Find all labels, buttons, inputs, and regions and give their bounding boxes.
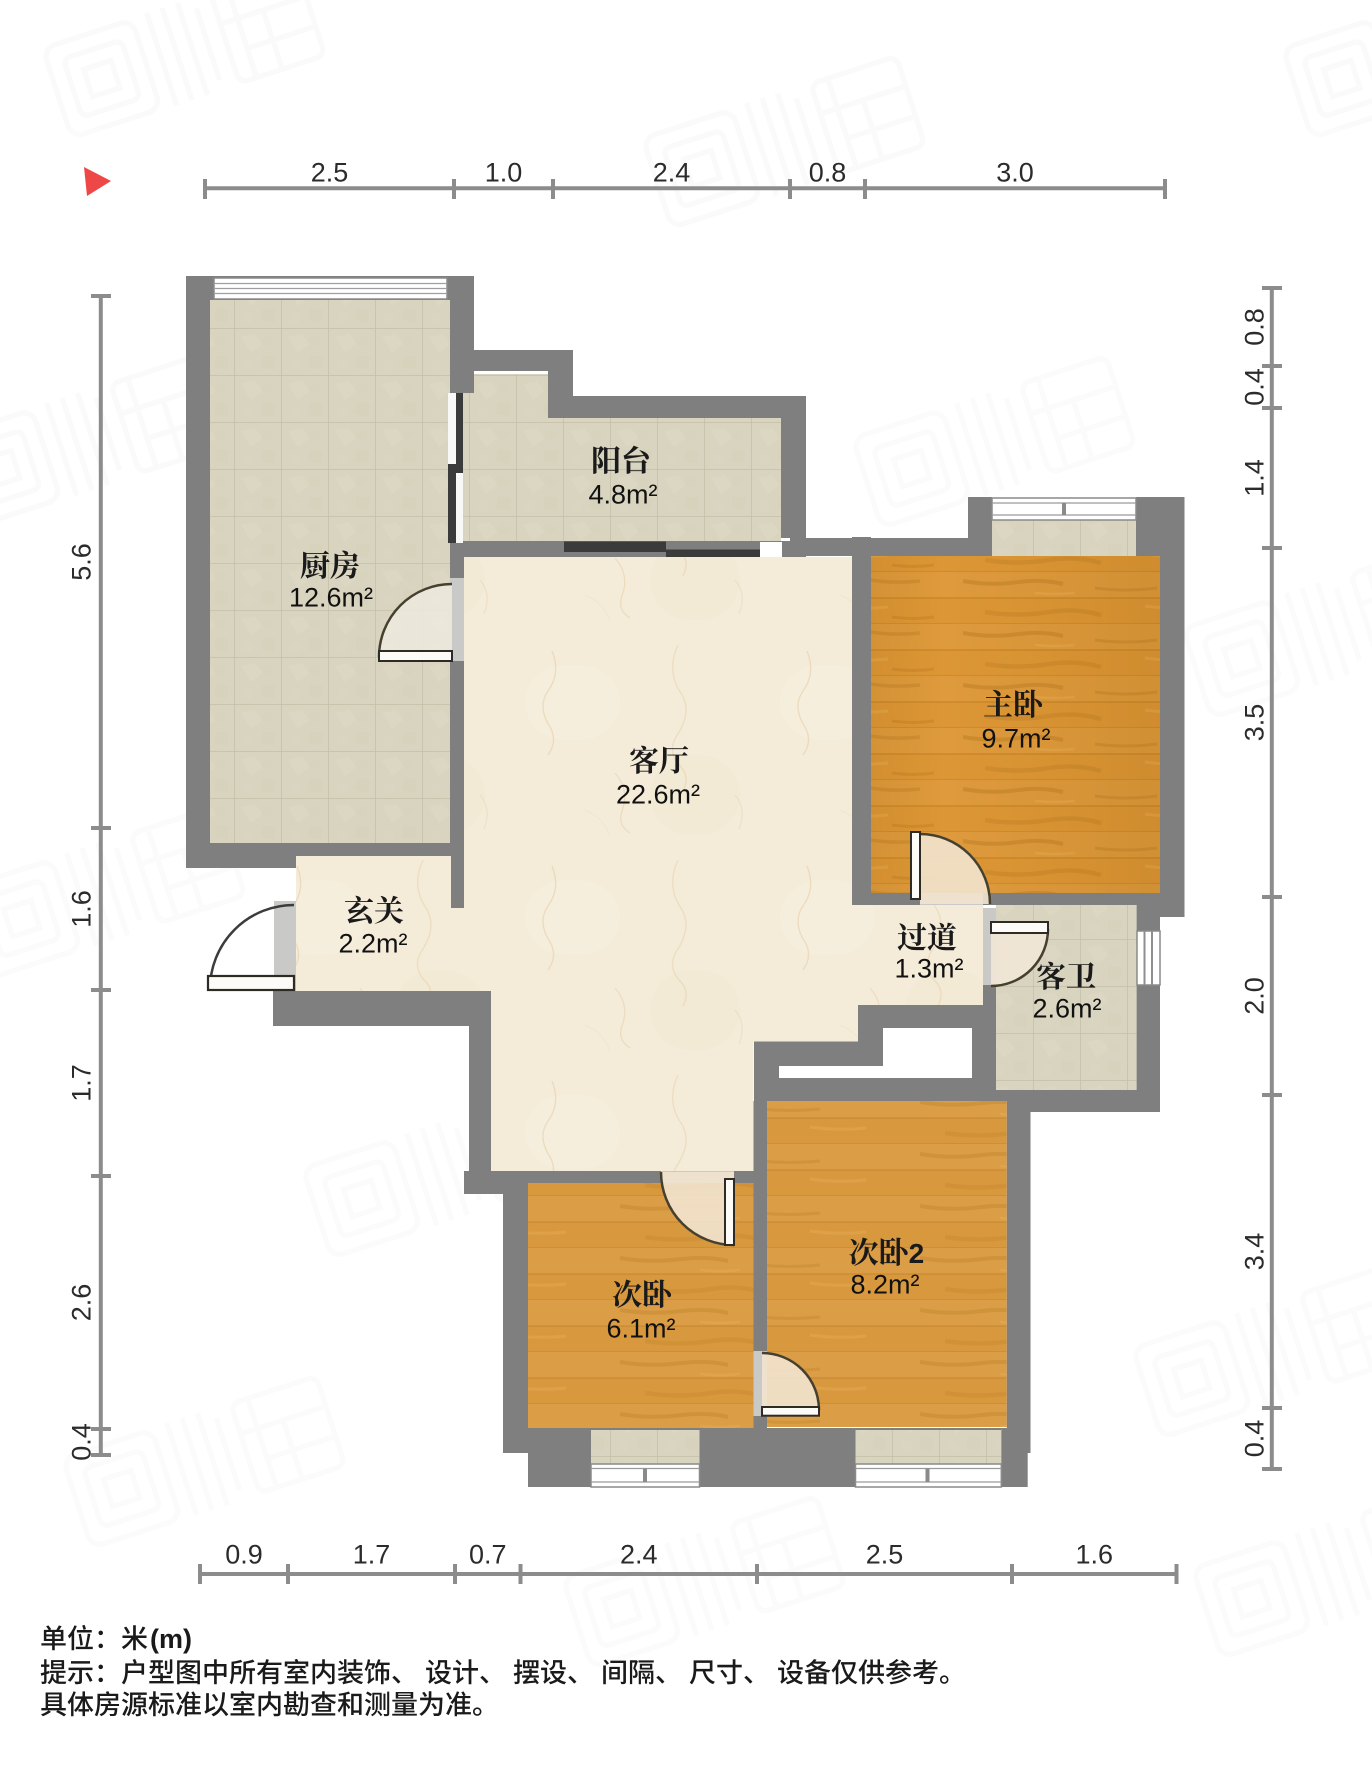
svg-text:3.5: 3.5 (1240, 704, 1270, 742)
svg-text:2.4: 2.4 (653, 158, 691, 188)
svg-text:1.4: 1.4 (1240, 459, 1270, 497)
svg-text:0.8: 0.8 (1240, 308, 1270, 346)
svg-text:2.5: 2.5 (311, 158, 349, 188)
svg-text:3.0: 3.0 (996, 158, 1034, 188)
svg-text:0.7: 0.7 (469, 1540, 507, 1570)
svg-text:1.6: 1.6 (67, 890, 97, 928)
svg-text:2.5: 2.5 (866, 1540, 904, 1570)
svg-text:1.0: 1.0 (485, 158, 523, 188)
svg-text:22.6m²: 22.6m² (616, 780, 700, 810)
svg-text:1.3m²: 1.3m² (894, 954, 963, 984)
svg-text:2.6: 2.6 (67, 1284, 97, 1322)
svg-text:2.2m²: 2.2m² (338, 929, 407, 959)
svg-text:2.4: 2.4 (620, 1540, 658, 1570)
svg-text:0.8: 0.8 (809, 158, 847, 188)
svg-text:5.6: 5.6 (67, 543, 97, 581)
svg-text:12.6m²: 12.6m² (289, 583, 373, 613)
svg-text:1.7: 1.7 (67, 1064, 97, 1102)
svg-text:1.7: 1.7 (353, 1540, 391, 1570)
svg-text:1.6: 1.6 (1075, 1540, 1113, 1570)
svg-text:8.2m²: 8.2m² (850, 1270, 919, 1300)
svg-text:2.6m²: 2.6m² (1032, 994, 1101, 1024)
svg-text:4.8m²: 4.8m² (588, 480, 657, 510)
svg-text:9.7m²: 9.7m² (981, 724, 1050, 754)
svg-text:3.4: 3.4 (1240, 1233, 1270, 1271)
svg-text:2: 2 (909, 1238, 925, 1269)
svg-text:6.1m²: 6.1m² (606, 1314, 675, 1344)
svg-text:0.9: 0.9 (225, 1540, 263, 1570)
svg-text:0.4: 0.4 (1240, 1420, 1270, 1458)
svg-text:2.0: 2.0 (1240, 977, 1270, 1015)
svg-text:(m): (m) (150, 1624, 192, 1654)
svg-text:0.4: 0.4 (1240, 368, 1270, 406)
svg-text:0.4: 0.4 (67, 1423, 97, 1461)
